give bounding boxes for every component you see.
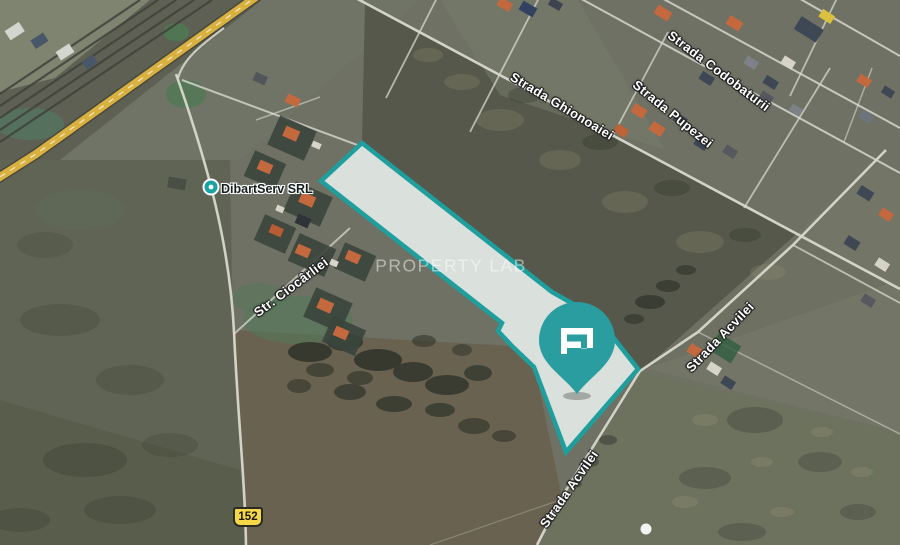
business-poi-marker-icon[interactable] bbox=[204, 180, 219, 195]
road-number-badge: 152 bbox=[233, 507, 263, 527]
satellite-map[interactable]: Strada Ghionoaiei Strada Codobaturii Str… bbox=[0, 0, 900, 545]
property-lab-watermark: PROPERTY LAB bbox=[375, 256, 527, 277]
white-poi-dot[interactable] bbox=[641, 524, 652, 535]
business-poi-label[interactable]: DibartServ SRL bbox=[221, 183, 313, 196]
